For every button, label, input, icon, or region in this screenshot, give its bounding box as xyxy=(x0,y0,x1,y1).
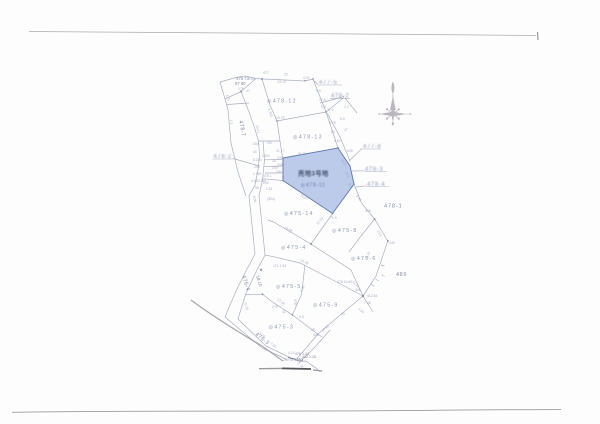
svg-text:4.60: 4.60 xyxy=(248,77,255,81)
svg-text:1.981: 1.981 xyxy=(253,172,262,176)
svg-text:12.5: 12.5 xyxy=(319,98,326,102)
svg-text:1303: 1303 xyxy=(262,154,270,158)
svg-text:25: 25 xyxy=(284,73,288,77)
svg-text:47: 47 xyxy=(246,89,250,93)
svg-text:478 1: 478 1 xyxy=(263,174,272,178)
svg-text:478-4: 478-4 xyxy=(367,182,385,188)
svg-text:21.1: 21.1 xyxy=(327,108,334,112)
svg-text:4.14: 4.14 xyxy=(288,351,295,355)
svg-text:8.240: 8.240 xyxy=(253,158,262,162)
svg-text:売地3号地: 売地3号地 xyxy=(298,169,329,178)
svg-text:449: 449 xyxy=(389,241,395,245)
svg-text:478 10.60: 478 10.60 xyxy=(337,280,352,284)
svg-text:8.3: 8.3 xyxy=(321,105,326,109)
svg-text:8.8: 8.8 xyxy=(340,117,345,121)
svg-text:◎478-13: ◎478-13 xyxy=(293,135,323,141)
svg-text:◎478-11: ◎478-11 xyxy=(301,183,326,189)
svg-text:412.84: 412.84 xyxy=(367,294,377,298)
svg-text:7.06: 7.06 xyxy=(364,301,371,305)
svg-text:458: 458 xyxy=(355,288,361,292)
svg-text:◎478-12: ◎478-12 xyxy=(267,99,297,105)
svg-text:1.51: 1.51 xyxy=(266,187,273,191)
svg-text:4.64: 4.64 xyxy=(334,139,341,143)
svg-text:◎475-9: ◎475-9 xyxy=(313,303,339,309)
svg-text:0.5: 0.5 xyxy=(299,315,304,319)
svg-text:.279: .279 xyxy=(271,305,278,309)
svg-text:◎475-3: ◎475-3 xyxy=(269,325,295,331)
svg-text:452 1.28: 452 1.28 xyxy=(302,355,316,359)
svg-text:9.79: 9.79 xyxy=(329,121,336,125)
svg-text:47: 47 xyxy=(344,128,348,132)
svg-text:478-1: 478-1 xyxy=(384,204,403,210)
svg-text:◎475-4: ◎475-4 xyxy=(281,245,307,251)
svg-text:19.79: 19.79 xyxy=(276,116,285,120)
svg-text:48: 48 xyxy=(311,328,315,332)
svg-text:240: 240 xyxy=(254,165,260,169)
svg-text:477-8: 477-8 xyxy=(363,144,381,150)
svg-text:448: 448 xyxy=(313,333,319,337)
svg-text:41: 41 xyxy=(282,310,286,314)
svg-text:178: 178 xyxy=(238,87,244,91)
svg-text:44: 44 xyxy=(341,312,345,316)
svg-text:171 1.34: 171 1.34 xyxy=(273,264,286,268)
svg-text:◎475-14: ◎475-14 xyxy=(284,211,314,217)
svg-text:348: 348 xyxy=(277,163,283,167)
svg-text:◎475-6: ◎475-6 xyxy=(351,256,377,262)
svg-text:◎475-5: ◎475-5 xyxy=(276,284,302,290)
svg-text:40: 40 xyxy=(253,150,257,154)
svg-text:55.32: 55.32 xyxy=(298,152,307,156)
svg-text:478-3: 478-3 xyxy=(365,167,383,173)
svg-text:240: 240 xyxy=(276,170,282,174)
svg-text:477: 477 xyxy=(263,71,269,75)
svg-text:489: 489 xyxy=(396,272,407,278)
svg-text:478-2: 478-2 xyxy=(331,93,349,99)
svg-text:53.12: 53.12 xyxy=(278,80,287,84)
svg-text:71.4: 71.4 xyxy=(330,216,337,220)
svg-text:◎475-8: ◎475-8 xyxy=(332,228,358,234)
svg-text:608: 608 xyxy=(347,149,353,153)
svg-text:1304: 1304 xyxy=(252,142,260,146)
svg-text:9.5: 9.5 xyxy=(316,89,321,93)
svg-text:240: 240 xyxy=(277,156,283,160)
svg-text:(304): (304) xyxy=(267,197,275,201)
svg-text:2.2: 2.2 xyxy=(344,105,349,109)
svg-text:+60: +60 xyxy=(266,141,272,145)
svg-text:21.17: 21.17 xyxy=(276,149,285,153)
svg-text:28: 28 xyxy=(272,159,276,163)
svg-text:451: 451 xyxy=(297,357,304,362)
svg-text:478-2: 478-2 xyxy=(214,154,232,160)
svg-text:98: 98 xyxy=(255,186,259,190)
svg-text:52: 52 xyxy=(331,130,335,134)
svg-text:240: 240 xyxy=(263,181,269,185)
svg-text:448: 448 xyxy=(365,209,371,213)
svg-text:97 80: 97 80 xyxy=(235,81,246,86)
svg-text:4.02: 4.02 xyxy=(303,76,310,80)
svg-text:477-5: 477-5 xyxy=(319,80,337,86)
